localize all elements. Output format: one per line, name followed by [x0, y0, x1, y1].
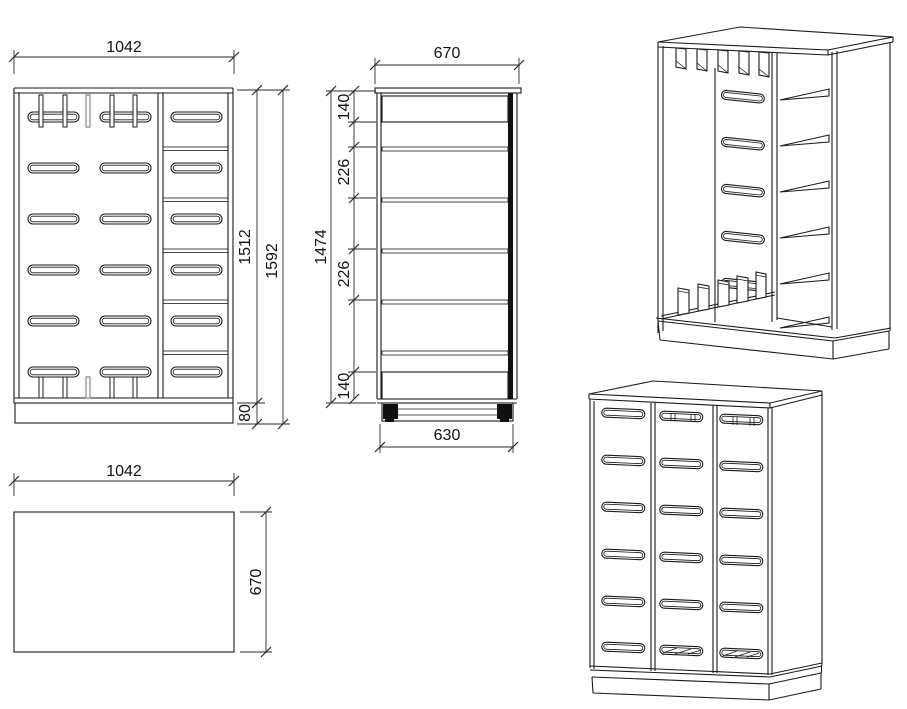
side-bottom-rail: [382, 372, 508, 399]
handle-slot: [720, 508, 763, 519]
handle-slot: [720, 461, 763, 472]
handle-slot: [721, 137, 765, 150]
front-view: 1042: [9, 39, 290, 429]
handle-slot: [720, 555, 763, 566]
handle-slot: [100, 316, 151, 326]
plan-view: 1042 670: [9, 463, 272, 657]
iso-rear-view: [656, 27, 893, 359]
handle-slot: [28, 214, 79, 224]
side-dim-base-depth: 630: [375, 424, 518, 453]
iso-rear-plinth: [656, 318, 891, 359]
handle-slot: [602, 502, 645, 513]
handle-slot: [660, 599, 703, 610]
front-dim-width: 1042: [9, 39, 239, 74]
side-plinth: [382, 403, 513, 422]
handle-slot: [28, 163, 79, 173]
side-dim-depth: 670: [370, 45, 524, 84]
handle-slot: [660, 552, 703, 563]
side-dim-chain: 140 226 226 140 1474: [313, 86, 376, 408]
iso-rear-top-dividers: [676, 48, 769, 77]
iso-front-top-panel: [589, 381, 822, 403]
handle-slot: [721, 90, 765, 103]
handle-slot: [721, 231, 765, 244]
side-dim-carcass-height-label: 1474: [313, 229, 330, 265]
side-dim-depth-label: 670: [434, 45, 461, 62]
front-dim-width-label: 1042: [106, 39, 142, 56]
handle-slot: [100, 214, 151, 224]
handle-slot: [660, 505, 703, 516]
side-top-panel: [375, 88, 521, 93]
handle-slot: [660, 411, 703, 422]
plan-outline: [14, 512, 234, 652]
drawing-canvas: 1042: [0, 0, 907, 709]
side-front-edge-section: [508, 93, 513, 399]
front-bottom-dividers: [39, 377, 137, 398]
handle-slot: [171, 367, 222, 377]
handle-slot: [171, 265, 222, 275]
iso-front-view: [589, 381, 822, 700]
handle-slot: [100, 163, 151, 173]
handle-slot: [28, 316, 79, 326]
front-dim-body-height-label: 1512: [237, 229, 254, 265]
plan-dim-depth-label: 670: [248, 569, 265, 596]
handle-slot: [660, 458, 703, 469]
side-dim-lower-shelf-gap-label: 226: [336, 261, 353, 288]
side-top-rail: [382, 96, 508, 122]
plan-dim-width-label: 1042: [106, 463, 142, 480]
handle-slot: [100, 112, 151, 122]
front-dim-plinth-height-label: 80: [237, 404, 254, 422]
iso-rear-top-panel: [658, 27, 893, 50]
handle-slot: [602, 455, 645, 466]
handle-slot: [28, 265, 79, 275]
side-carcass: [375, 88, 521, 403]
handle-slot: [171, 316, 222, 326]
side-dim-upper-shelf-gap-label: 226: [336, 159, 353, 186]
side-section-view: 670: [313, 45, 524, 453]
side-dim-bottom-gap-label: 140: [336, 373, 353, 400]
handle-slot: [720, 602, 763, 613]
handle-slot: [100, 367, 151, 377]
front-dim-heights: 1512 1592 80: [237, 85, 290, 429]
handle-slot: [602, 549, 645, 560]
iso-rear-handle-slots: [721, 90, 765, 291]
iso-rear-panels: [658, 42, 890, 333]
handle-slot: [28, 367, 79, 377]
handle-slot: [602, 408, 645, 419]
handle-slot: [171, 112, 222, 122]
handle-slot: [602, 596, 645, 607]
plan-dim-depth: 670: [240, 507, 272, 657]
side-bracket-left: [383, 404, 398, 419]
front-handle-slots: [28, 112, 222, 377]
handle-slot: [720, 414, 763, 425]
handle-slot: [171, 214, 222, 224]
iso-front-handle-slots: [602, 408, 763, 659]
front-plinth: [15, 403, 233, 423]
iso-front-slot-divider-marks: [663, 413, 759, 657]
iso-rear-shelves: [780, 89, 829, 328]
side-dim-base-depth-label: 630: [434, 427, 461, 444]
side-dim-top-gap-label: 140: [336, 94, 353, 121]
handle-slot: [721, 184, 765, 197]
technical-drawing: 1042: [0, 0, 907, 709]
plan-dim-width: 1042: [9, 463, 239, 496]
handle-slot: [660, 645, 703, 656]
front-dim-total-height-label: 1592: [264, 243, 281, 279]
handle-slot: [28, 112, 79, 122]
iso-front-frame: [590, 395, 822, 675]
handle-slot: [100, 265, 151, 275]
handle-slot: [602, 642, 645, 653]
side-bracket-right: [497, 404, 512, 419]
handle-slot: [171, 163, 222, 173]
